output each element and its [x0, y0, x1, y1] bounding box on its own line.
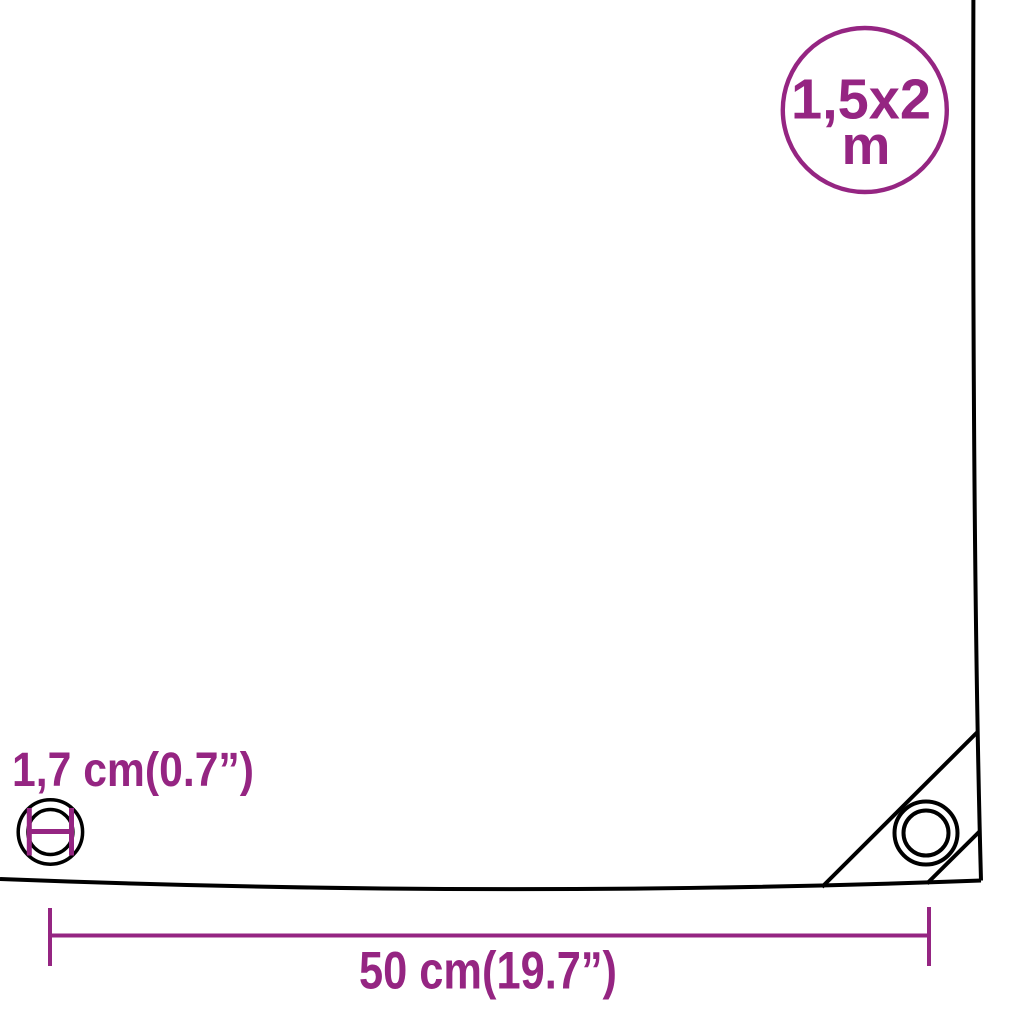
- svg-text:50 cm(19.7”): 50 cm(19.7”): [359, 942, 617, 1001]
- svg-text:m: m: [842, 114, 891, 176]
- svg-text:1,7 cm(0.7”): 1,7 cm(0.7”): [12, 744, 254, 797]
